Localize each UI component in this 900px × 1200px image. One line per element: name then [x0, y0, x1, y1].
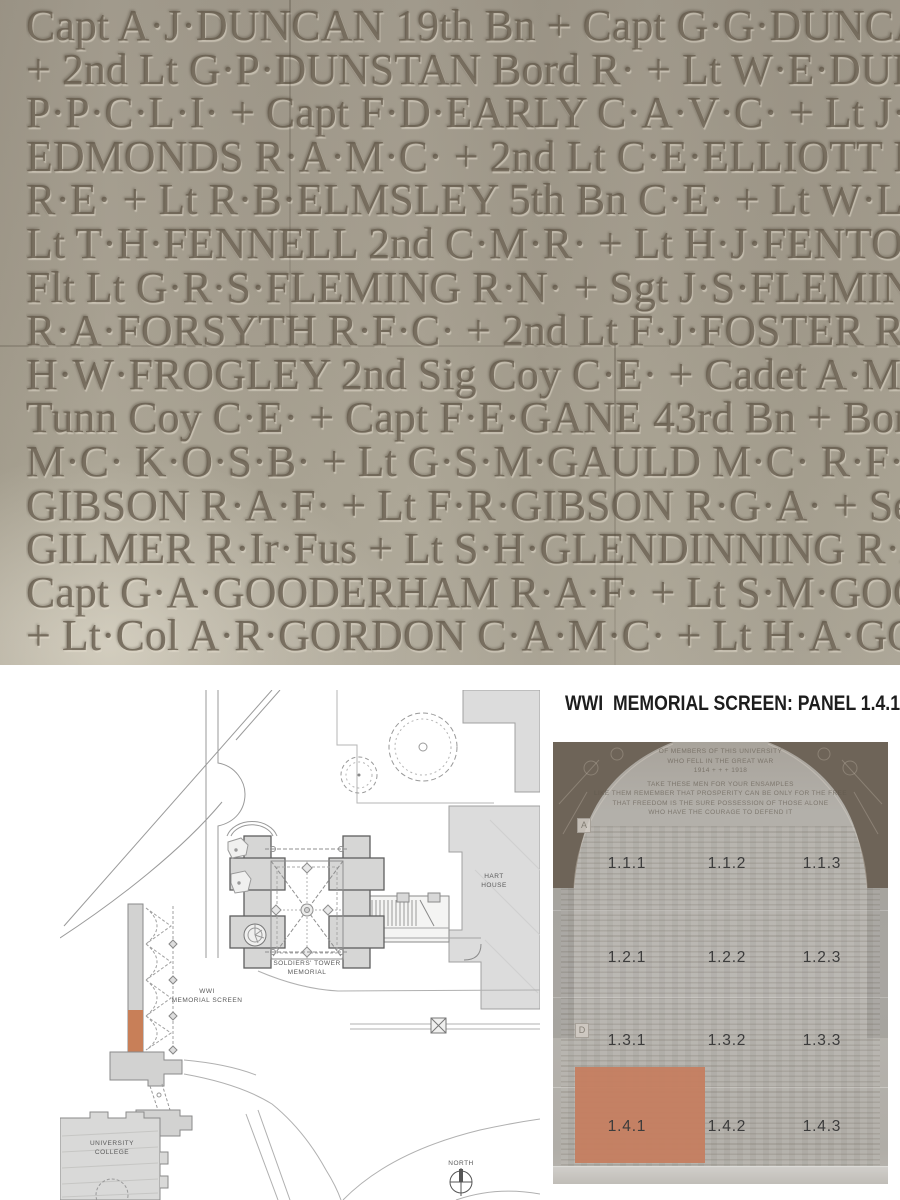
highlight-panel-1-4-1: [575, 1067, 705, 1163]
building-footprints: [449, 690, 540, 1009]
hart-house-footprint: [449, 806, 540, 1009]
panel-label-1-4-3: 1.4.3: [803, 1118, 841, 1136]
hart-house-label: HOUSE: [481, 882, 507, 889]
carved-name-line: M·C· K·O·S·B· + Lt G·S·M·GAULD M·C· R·F·…: [26, 440, 900, 484]
floor-strip: [553, 1166, 888, 1184]
gate-symbol: [431, 1018, 446, 1033]
panel-label-1-1-1: 1.1.1: [608, 855, 646, 873]
carved-name-line: GILMER R·Ir·Fus + Lt S·H·GLENDINNING R·A…: [26, 527, 900, 571]
gate-footprint: [110, 1052, 182, 1086]
inscription-line: THAT FREEDOM IS THE SURE POSSESSION OF T…: [580, 799, 861, 809]
hart-house-label: HART: [484, 873, 504, 880]
panel-label-1-1-3: 1.1.3: [803, 855, 841, 873]
dedication-inscription: OF MEMBERS OF THIS UNIVERSITY WHO FELL I…: [580, 747, 861, 818]
carved-name-line: P·P·C·L·I· + Capt F·D·EARLY C·A·V·C· + L…: [26, 91, 900, 135]
inscription-line: WHO HAVE THE COURAGE TO DEFEND IT: [580, 808, 861, 818]
carved-name-line: Lt T·H·FENNELL 2nd C·M·R· + Lt H·J·FENTO…: [26, 222, 900, 266]
panel-label-1-2-1: 1.2.1: [608, 949, 646, 967]
panel-label-1-4-2: 1.4.2: [708, 1118, 746, 1136]
carved-name-line: + 2nd Lt G·P·DUNSTAN Bord R· + Lt W·E·DU…: [26, 48, 900, 92]
site-plan-figure: HART HOUSE SOLDIERS' TOWER MEMORIAL WWI …: [60, 690, 540, 1200]
screen-overview-photo: OF MEMBERS OF THIS UNIVERSITY WHO FELL I…: [553, 742, 888, 1184]
carved-name-line: + Lt·Col A·R·GORDON C·A·M·C· + Lt H·A·GO…: [26, 614, 900, 658]
spiral-stair: [244, 924, 266, 946]
panel-label-1-3-1: 1.3.1: [608, 1032, 646, 1050]
names-panel-photo: Capt A·J·DUNCAN 19th Bn + Capt G·G·DUNCA…: [0, 0, 900, 665]
panel-label-1-3-3: 1.3.3: [803, 1032, 841, 1050]
site-plan-drawing: HART HOUSE SOLDIERS' TOWER MEMORIAL WWI …: [60, 690, 540, 1200]
carved-name-line: R·E· + Lt R·B·ELMSLEY 5th Bn C·E· + Lt W…: [26, 178, 900, 222]
panel-label-1-2-2: 1.2.2: [708, 949, 746, 967]
inscription-line: 1914 + + + 1918: [580, 766, 861, 776]
stone-joint-vertical: [614, 345, 616, 665]
north-arrow-icon: [450, 1168, 472, 1196]
gate-path: [150, 1084, 170, 1110]
inscription-line: WHO FELL IN THE GREAT WAR: [580, 757, 861, 767]
north-label: NORTH: [448, 1160, 474, 1167]
carved-name-line: Flt Lt G·R·S·FLEMING R·N· + Sgt J·S·FLEM…: [26, 266, 900, 310]
page-title: WWI MEMORIAL SCREEN: PANEL 1.4.1: [565, 691, 900, 716]
page: Capt A·J·DUNCAN 19th Bn + Capt G·G·DUNCA…: [0, 0, 900, 1200]
carved-name-line: EDMONDS R·A·M·C· + 2nd Lt C·E·ELLIOTT R·…: [26, 135, 900, 179]
wwi-screen-label: MEMORIAL SCREEN: [172, 997, 243, 1004]
stone-joint-horizontal: [0, 345, 900, 347]
inscription-line: LIKE THEM REMEMBER THAT PROSPERITY CAN B…: [580, 789, 861, 799]
university-college-footprint: [60, 1112, 168, 1200]
carved-name-line: H·W·FROGLEY 2nd Sig Coy C·E· + Cadet A·M…: [26, 353, 900, 397]
carved-name-line: Capt G·A·GOODERHAM R·A·F· + Lt S·M·GOODE…: [26, 571, 900, 615]
panel-label-1-1-2: 1.1.2: [708, 855, 746, 873]
carved-name-line: Capt A·J·DUNCAN 19th Bn + Capt G·G·DUNCA…: [26, 4, 900, 48]
inscription-line: TAKE THESE MEN FOR YOUR ENSAMPLES: [580, 780, 861, 790]
carved-name-line: GIBSON R·A·F· + Lt F·R·GIBSON R·G·A· + S…: [26, 484, 900, 528]
panel-label-1-3-2: 1.3.2: [708, 1032, 746, 1050]
university-college-label: UNIVERSITY: [90, 1140, 134, 1147]
university-college-label: COLLEGE: [95, 1149, 129, 1156]
inscription-line: OF MEMBERS OF THIS UNIVERSITY: [580, 747, 861, 757]
panel-label-1-4-1: 1.4.1: [608, 1118, 646, 1136]
tree-symbols: [341, 713, 457, 793]
stone-marker-d: D: [575, 1023, 589, 1038]
wwi-screen-label: WWI: [199, 988, 215, 995]
screen-arcade: [146, 906, 173, 1050]
panel-label-1-2-3: 1.2.3: [803, 949, 841, 967]
soldiers-tower-label: SOLDIERS' TOWER: [273, 960, 340, 967]
soldiers-tower-label: MEMORIAL: [288, 969, 327, 976]
carved-names-block: Capt A·J·DUNCAN 19th Bn + Capt G·G·DUNCA…: [26, 4, 900, 665]
map-highlight-panel-1-4-1: [128, 1010, 143, 1052]
stone-marker-a: A: [577, 818, 591, 833]
carved-name-line: Tunn Coy C·E· + Capt F·E·GANE 43rd Bn + …: [26, 396, 900, 440]
stone-joint-vertical: [289, 0, 291, 346]
